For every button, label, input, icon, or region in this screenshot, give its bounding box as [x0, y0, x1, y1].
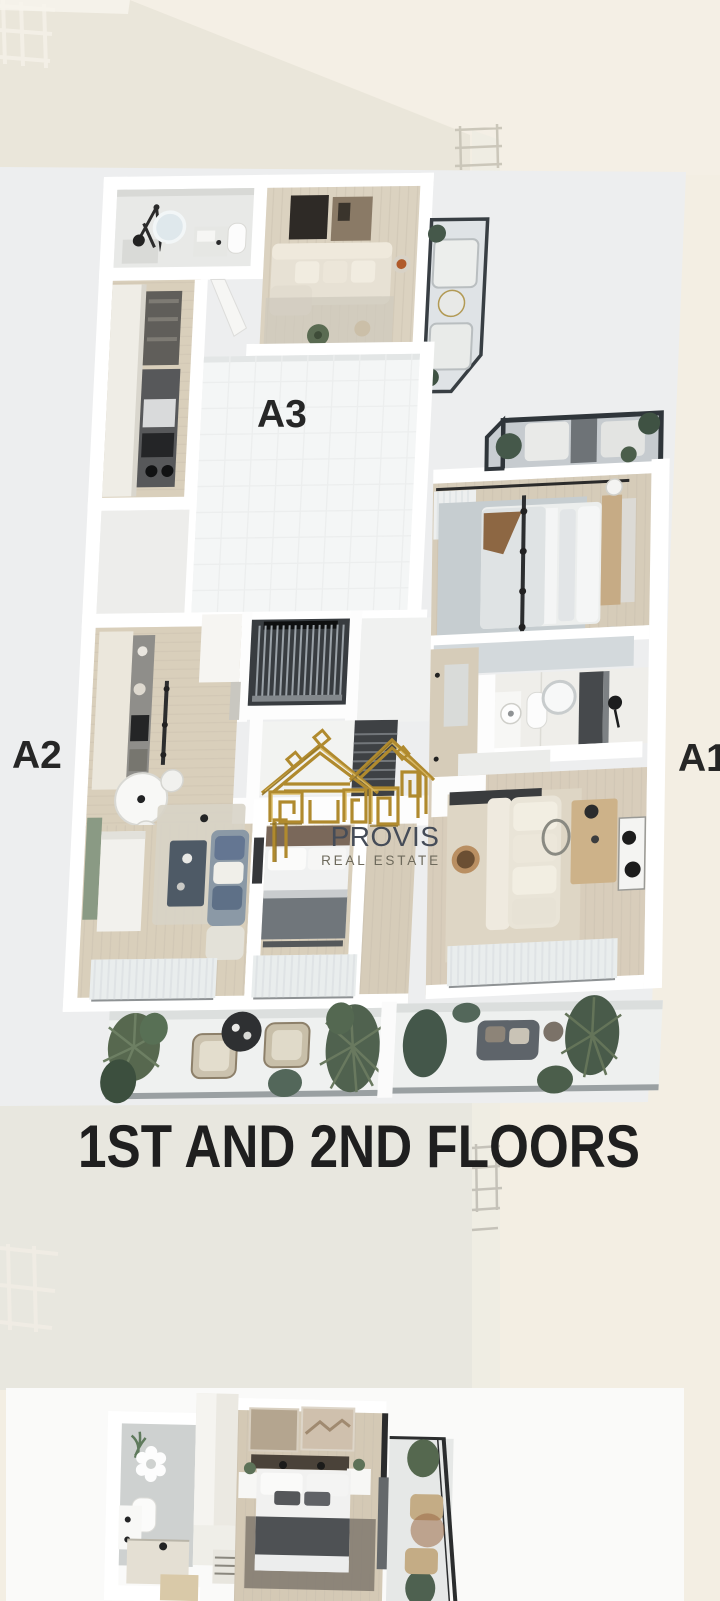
svg-text:REAL ESTATE: REAL ESTATE — [321, 853, 441, 868]
svg-text:A1: A1 — [678, 737, 720, 780]
svg-text:A2: A2 — [12, 734, 62, 777]
svg-text:1ST AND 2ND FLOORS: 1ST AND 2ND FLOORS — [78, 1113, 640, 1180]
svg-text:A3: A3 — [257, 393, 307, 436]
svg-text:PROVIS: PROVIS — [331, 821, 440, 852]
